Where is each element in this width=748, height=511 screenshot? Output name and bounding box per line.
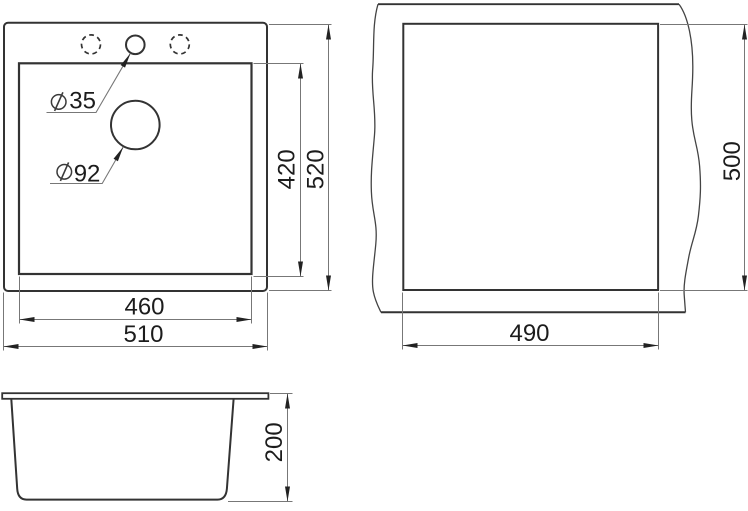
svg-text:510: 510 <box>123 321 163 348</box>
svg-text:490: 490 <box>509 320 549 347</box>
svg-text:520: 520 <box>303 149 330 189</box>
svg-text:35: 35 <box>69 87 96 114</box>
svg-text:460: 460 <box>124 294 164 321</box>
svg-text:92: 92 <box>74 160 101 187</box>
svg-text:500: 500 <box>719 141 746 181</box>
svg-text:420: 420 <box>274 149 301 189</box>
svg-text:200: 200 <box>261 422 288 462</box>
